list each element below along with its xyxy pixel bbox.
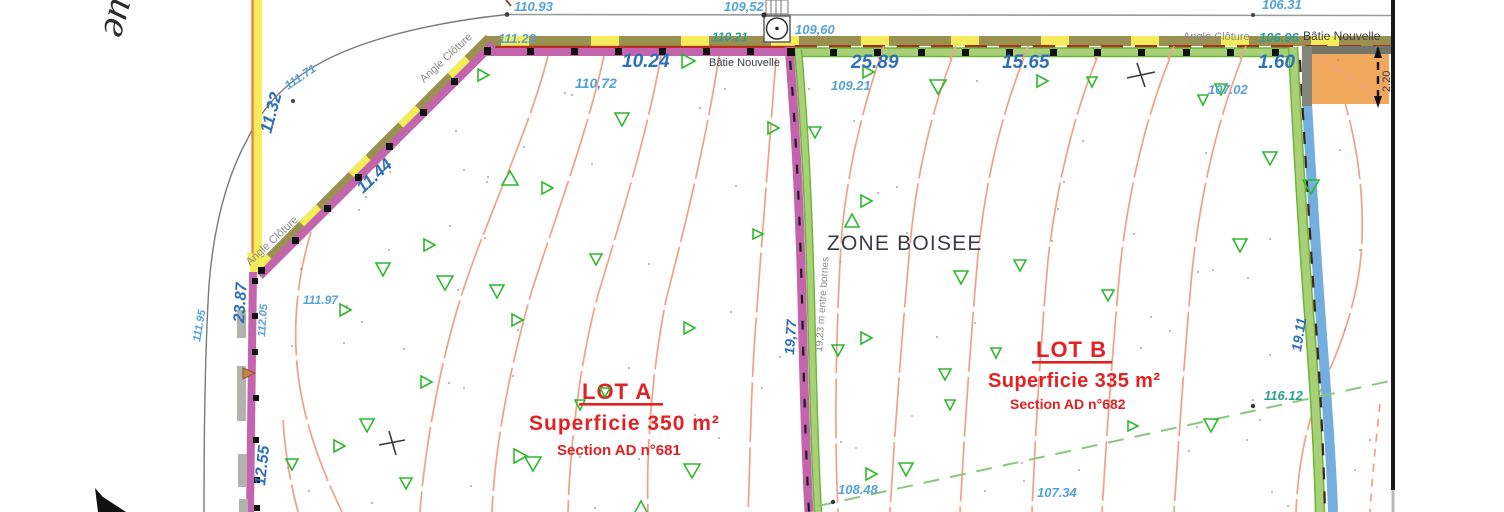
svg-text:1.60: 1.60 [1258,52,1295,73]
svg-text:106.31: 106.31 [1262,0,1302,12]
svg-text:108.48: 108.48 [838,482,879,497]
svg-text:110.93: 110.93 [514,0,554,14]
svg-text:109.21: 109.21 [831,78,871,93]
svg-text:Superficie 350 m²: Superficie 350 m² [529,412,720,435]
svg-text:110,72: 110,72 [575,75,617,91]
svg-text:ZONE BOISEE: ZONE BOISEE [827,232,983,255]
svg-text:107.02: 107.02 [1208,82,1249,97]
svg-text:19,77: 19,77 [781,318,799,355]
svg-text:112.05: 112.05 [256,303,270,337]
svg-text:Section AD n°682: Section AD n°682 [1010,396,1126,412]
svg-text:2.20: 2.20 [1381,71,1393,92]
svg-text:Angle Clôture: Angle Clôture [1183,31,1250,43]
svg-text:10.24: 10.24 [622,51,670,72]
svg-text:111.22: 111.22 [498,31,537,46]
svg-text:111.97: 111.97 [303,293,339,307]
svg-text:Bâtie Nouvelle: Bâtie Nouvelle [1303,29,1381,43]
svg-text:109,52: 109,52 [724,0,765,14]
svg-text:109,60: 109,60 [795,22,836,37]
svg-text:LOT A: LOT A [582,379,652,404]
svg-text:110.21: 110.21 [712,30,748,44]
svg-text:25.89: 25.89 [850,52,899,73]
svg-text:106.96: 106.96 [1259,30,1300,45]
svg-text:23.87: 23.87 [231,281,251,324]
svg-text:15.65: 15.65 [1002,52,1050,73]
svg-text:107.34: 107.34 [1037,485,1078,500]
svg-text:Superficie 335 m²: Superficie 335 m² [988,370,1160,392]
svg-text:Bâtie Nouvelle: Bâtie Nouvelle [709,57,780,69]
svg-text:116.12: 116.12 [1264,388,1304,403]
svg-text:Section AD n°681: Section AD n°681 [557,442,681,459]
svg-text:LOT B: LOT B [1036,337,1107,362]
